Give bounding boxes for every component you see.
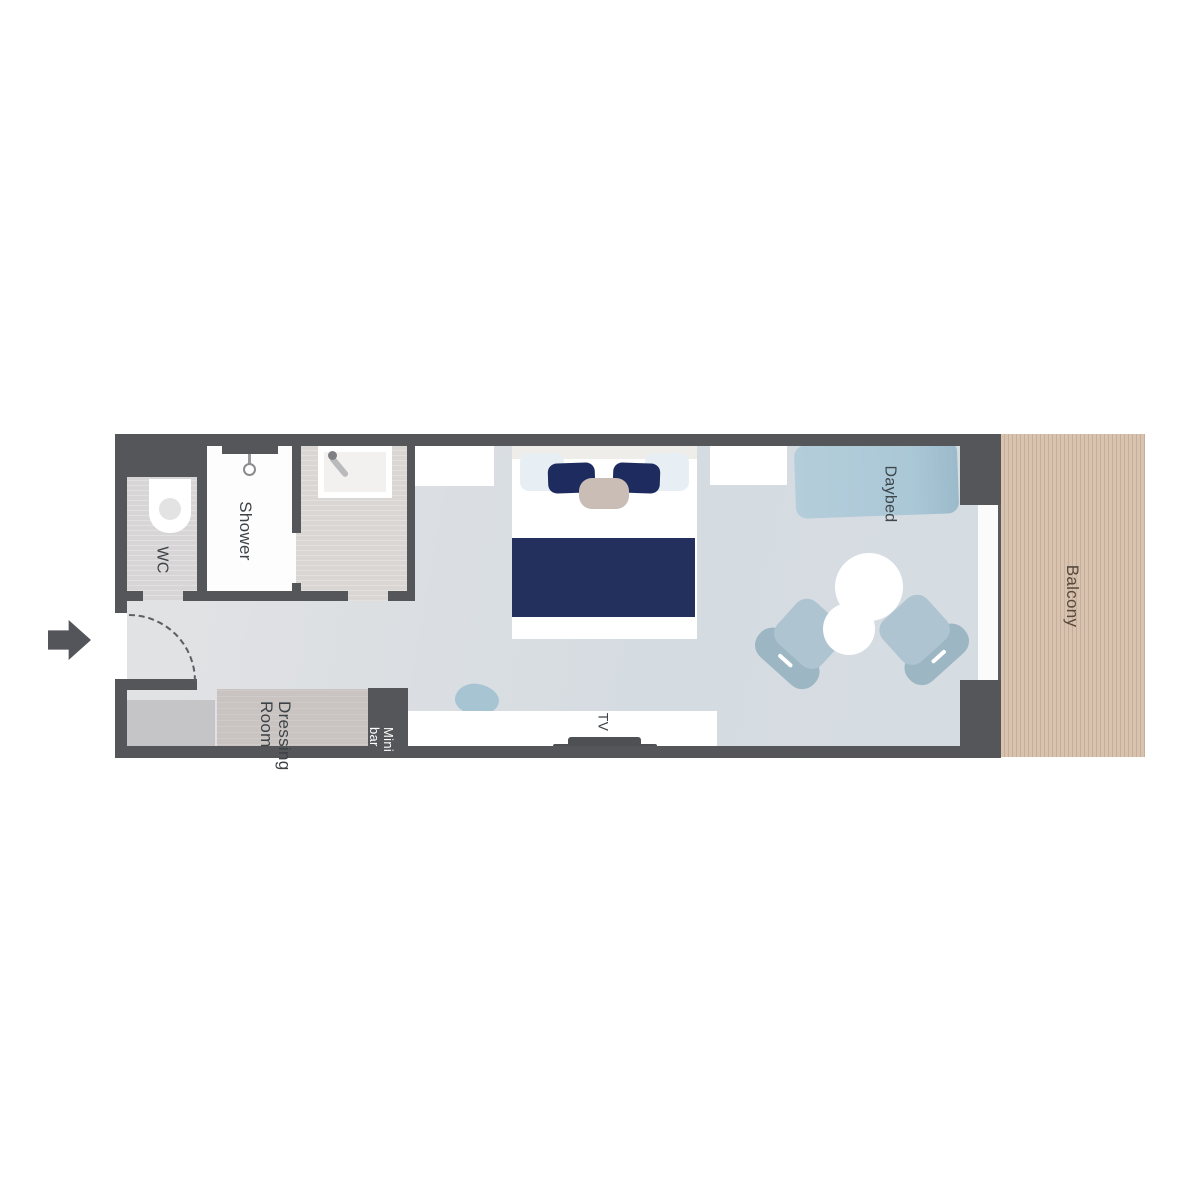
accent-cushion [579, 478, 629, 509]
toilet-lid [159, 498, 181, 520]
wall-vanity-right [407, 444, 415, 601]
wall-wc-block [127, 434, 207, 477]
faucet-base [328, 451, 337, 460]
table-round-small [823, 603, 875, 655]
entry-arrow-icon [48, 620, 91, 660]
tv-label: TV [596, 713, 611, 732]
sliding-glass-door [998, 505, 1001, 680]
dressing-label-line1: Dressing [275, 701, 293, 770]
shower-fixture-bar [222, 446, 278, 454]
nightstand-left [415, 446, 494, 486]
floor-plan-canvas: WC Shower DressingRoom Minibar TV Daybed… [0, 0, 1200, 1200]
minibar-label-line2: bar [368, 727, 382, 747]
bed [512, 446, 697, 639]
wall-bath-segment-a [127, 591, 143, 601]
wall-right-bottom [960, 680, 1001, 758]
daybed-label: Daybed [881, 466, 898, 523]
toilet [149, 479, 191, 533]
shower-head-icon [243, 463, 256, 476]
minibar-label-line1: Mini [381, 727, 395, 752]
shower-label: Shower [236, 501, 254, 560]
wall-wc-shower [197, 470, 207, 601]
nightstand-right [710, 446, 787, 485]
balcony-label: Balcony [1063, 565, 1081, 628]
bed-blanket [512, 538, 695, 617]
wall-right-top [960, 434, 1001, 505]
wall-shower-vanity-stub [292, 583, 301, 601]
wall-left-lower [115, 679, 127, 758]
wc-label: WC [153, 546, 170, 573]
wall-shower-vanity [292, 444, 301, 533]
wall-top [115, 434, 1001, 446]
dressing-label-line2: Room [257, 701, 275, 748]
wall-bath-segment-b [183, 591, 348, 601]
wall-left-upper [115, 434, 127, 613]
daybed [794, 440, 959, 519]
wall-bottom [115, 746, 1001, 758]
closet-block [127, 700, 215, 752]
